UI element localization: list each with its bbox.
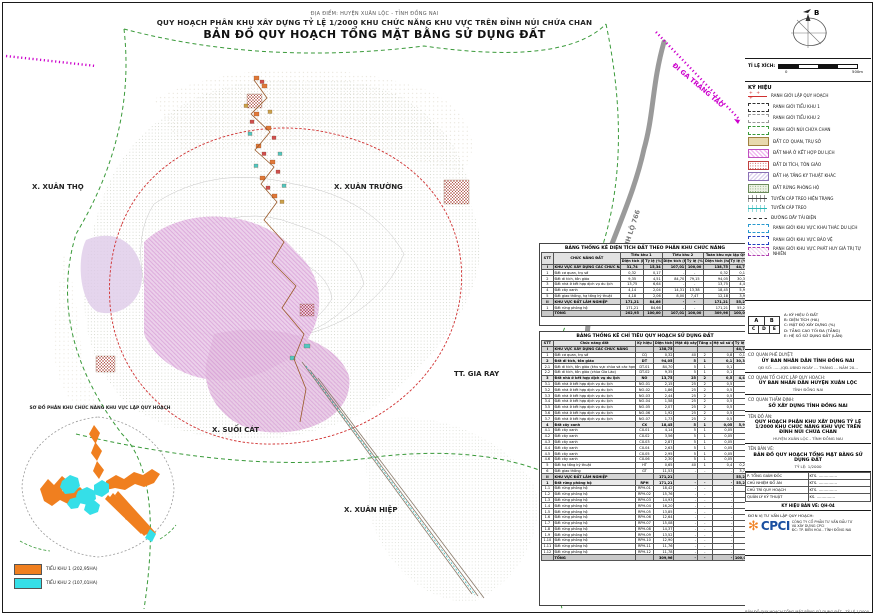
approval-agency: ỦY BAN NHÂN DÂN TỈNH ĐỒNG NAI <box>748 359 868 364</box>
legend-swatch <box>748 215 767 222</box>
signature-row: CHỦ TRÌ QUY HOẠCH KTS. …………… <box>746 487 871 494</box>
legend-item: ĐẤT RỪNG PHÒNG HỘ <box>748 184 868 193</box>
drawing-label: TÊN BẢN VẼ: <box>748 446 868 451</box>
legend-label: ĐẤT NHÀ Ở KẾT HỢP DU LỊCH <box>773 151 835 156</box>
parcel-key-list: A: KÝ HIỆU Ô ĐẤT B: DIỆN TÍCH (HA) C: MẬ… <box>784 312 843 338</box>
plan-title: QUY HOẠCH PHÂN KHU XÂY DỰNG TỶ LỆ 1/2000… <box>4 18 745 27</box>
table1-title: BẢNG THỐNG KÊ DIỆN TÍCH ĐẤT THEO PHÂN KH… <box>541 245 749 252</box>
inset-legend-swatch <box>14 564 42 575</box>
approval-label: CƠ QUAN PHÊ DUYỆT: <box>748 352 868 357</box>
table1-body: I KHU VỰC XÂY DỰNG CÁC CHỨC NĂNG 31,74 1… <box>542 264 749 316</box>
legend-item: TUYẾN CÁP TREO <box>748 205 868 212</box>
legend-swatch <box>748 93 767 100</box>
land-use-indicator-table: BẢNG THỐNG KÊ CHỈ TIÊU QUY HOẠCH SỬ DỤNG… <box>539 331 751 606</box>
legend-swatch <box>748 172 769 181</box>
cpci-flower-icon: ✻ <box>748 520 759 533</box>
inset-zone1 <box>40 425 160 536</box>
legend-label: RANH GIỚI TIỂU KHU 1 <box>773 105 820 110</box>
footer-note: BẢN ĐỒ QUY HOẠCH TỔNG MẶT BẰNG SỬ DỤNG Đ… <box>745 610 869 614</box>
table2: STT Chức năng đất Ký hiệu Diện tích (ha)… <box>541 340 749 561</box>
legend-list: RANH GIỚI LẬP QUY HOẠCH RANH GIỚI TIỂU K… <box>748 93 868 256</box>
legend-item: TUYẾN CÁP TREO HIỆN TRẠNG <box>748 195 868 202</box>
consultant-label: ĐƠN VỊ TƯ VẤN LẬP QUY HOẠCH: <box>748 513 868 518</box>
legend-item: ĐẤT NHÀ Ở KẾT HỢP DU LỊCH <box>748 149 868 158</box>
sheet-title: BẢN ĐỒ QUY HOẠCH TỔNG MẶT BẰNG SỬ DỤNG Đ… <box>4 28 745 41</box>
legend-label: TUYẾN CÁP TREO <box>771 206 807 211</box>
scale-start: 0 <box>785 69 787 74</box>
legend-label: TUYẾN CÁP TREO HIỆN TRẠNG <box>771 197 833 202</box>
consultant-info: CÔNG TY CỔ PHẦN TƯ VẤN ĐẦU TƯ VÀ XÂY DỰN… <box>792 520 853 533</box>
legend-label: ĐẤT RỪNG PHÒNG HỘ <box>773 186 819 191</box>
label-gia-ray: TT. GIA RAY <box>454 370 500 378</box>
signature-row: P. TỔNG GIÁM ĐỐC KTS. …………… <box>746 472 871 479</box>
legend-label: RANH GIỚI NÚI CHỨA CHAN <box>773 128 830 133</box>
legend-item: RANH GIỚI KHU VỰC BẢO VỆ <box>748 236 868 245</box>
table2-body: I KHU VỰC XÂY DỰNG CÁC CHỨC NĂNG 138,75 … <box>542 346 749 560</box>
legend-item: ĐẤT DI TÍCH, TÔN GIÁO <box>748 161 868 170</box>
scale-end: 500m <box>852 69 863 74</box>
legend-swatch <box>748 137 769 146</box>
label-xuan-truong: X. XUÂN TRƯỜNG <box>334 182 403 191</box>
legend-swatch <box>748 114 769 123</box>
table-row: TỔNG 202,95 100,00 107,01 100,00 309,96 … <box>542 310 749 316</box>
label-xuan-hiep: X. XUÂN HIỆP <box>344 505 397 514</box>
legend-item: RANH GIỚI NÚI CHỨA CHAN <box>748 126 868 135</box>
organizer-label: CƠ QUAN TỔ CHỨC LẬP QUY HOẠCH: <box>748 375 868 380</box>
title-block-panel: B TỈ LỆ XÍCH: 0 500m KÝ HIỆU RANH GIỚI L… <box>745 4 871 609</box>
legend-swatch <box>748 103 769 112</box>
scale-bar <box>778 64 858 69</box>
legend-swatch <box>748 184 769 193</box>
label-xuan-tho: X. XUÂN THỌ <box>32 182 84 191</box>
organizer-section: CƠ QUAN TỔ CHỨC LẬP QUY HOẠCH: ỦY BAN NH… <box>745 373 871 396</box>
inset-legend-item: TIỂU KHU 2 (107,01HA) <box>14 578 97 589</box>
approval-section: CƠ QUAN PHÊ DUYỆT: ỦY BAN NHÂN DÂN TỈNH … <box>745 350 871 373</box>
table2-title: BẢNG THỐNG KÊ CHỈ TIÊU QUY HOẠCH SỬ DỤNG… <box>541 333 749 340</box>
drawing-name: BẢN ĐỒ QUY HOẠCH TỔNG MẶT BẰNG SỬ DỤNG Đ… <box>748 453 868 463</box>
appraisal-section: CƠ QUAN THẨM ĐỊNH: SỞ XÂY DỰNG TỈNH ĐỒNG… <box>745 395 871 412</box>
organizer-agency: ỦY BAN NHÂN DÂN HUYỆN XUÂN LỘC <box>748 381 868 386</box>
inset-legend: TIỂU KHU 1 (202,95HA) TIỂU KHU 2 (107,01… <box>14 564 97 592</box>
railway-arrowhead <box>734 119 740 124</box>
compass-rose: B <box>773 6 843 51</box>
appraisal-agency: SỞ XÂY DỰNG TỈNH ĐỒNG NAI <box>748 404 868 409</box>
location-line: ĐỊA ĐIỂM: HUYỆN XUÂN LỘC - TỈNH ĐỒNG NAI <box>4 11 745 17</box>
approval-decision: QĐ SỐ: ....../QĐ-UBND NGÀY ... THÁNG ...… <box>748 365 868 370</box>
parcel-key-entry: E: HỆ SỐ SỬ DỤNG ĐẤT (LẦN) <box>784 333 843 338</box>
legend-item: RANH GIỚI KHU VỰC PHÁT HUY GIÁ TRỊ TỰ NH… <box>748 247 868 256</box>
legend-item: RANH GIỚI TIỂU KHU 2 <box>748 114 868 123</box>
signature-table: P. TỔNG GIÁM ĐỐC KTS. …………… CHỦ NHIỆM ĐỒ… <box>745 472 871 502</box>
drawing-code: KÝ HIỆU BẢN VẼ: QH-04 <box>745 502 871 510</box>
legend-swatch <box>748 205 767 212</box>
parcel-key-diagram: A B C D E <box>748 316 780 334</box>
consultant-section: ĐƠN VỊ TƯ VẤN LẬP QUY HOẠCH: ✻ CPCI CÔNG… <box>745 511 871 556</box>
legend-item: ĐẤT HẠ TẦNG KỸ THUẬT KHÁC <box>748 172 868 181</box>
t1-h-func: CHỨC NĂNG ĐẤT <box>553 253 620 265</box>
project-name: QUY HOẠCH PHÂN KHU XÂY DỰNG TỶ LỆ 1/2000… <box>748 420 868 435</box>
legend-section: KÝ HIỆU RANH GIỚI LẬP QUY HOẠCH RANH GIỚ… <box>745 82 871 301</box>
north-label: B <box>814 9 819 17</box>
legend-item: RANH GIỚI KHU VỰC KHAI THÁC DU LỊCH <box>748 224 868 233</box>
signature-section: P. TỔNG GIÁM ĐỐC KTS. …………… CHỦ NHIỆM ĐỒ… <box>745 472 871 511</box>
legend-label: RANH GIỚI TIỂU KHU 2 <box>773 116 820 121</box>
legend-swatch <box>748 149 769 158</box>
inset-legend-item: TIỂU KHU 1 (202,95HA) <box>14 564 97 575</box>
map-area: ĐỊA ĐIỂM: HUYỆN XUÂN LỘC - TỈNH ĐỒNG NAI… <box>4 4 746 609</box>
legend-item: ĐƯỜNG DÂY TẢI ĐIỆN <box>748 215 868 222</box>
legend-label: ĐẤT HẠ TẦNG KỸ THUẬT KHÁC <box>773 174 836 179</box>
drawing-name-section: TÊN BẢN VẼ: BẢN ĐỒ QUY HOẠCH TỔNG MẶT BẰ… <box>745 444 871 472</box>
organizer-province: TỈNH ĐỒNG NAI <box>748 387 868 392</box>
signature-row: QUẢN LÝ KỸ THUẬT KS. …………… <box>746 494 871 501</box>
legend-label: RANH GIỚI KHU VỰC PHÁT HUY GIÁ TRỊ TỰ NH… <box>773 247 868 256</box>
legend-swatch <box>748 161 769 170</box>
drawing-scale: TỶ LỆ: 1/2000 <box>748 464 868 469</box>
legend-swatch <box>748 224 769 233</box>
legend-item: ĐẤT CƠ QUAN, TRỤ SỞ <box>748 137 868 146</box>
label-suoi-cat: X. SUỐI CÁT <box>212 424 259 434</box>
legend-swatch <box>748 236 769 245</box>
parcel-key-section: A B C D E A: KÝ HIỆU Ô ĐẤT B: DIỆN TÍCH … <box>745 301 871 350</box>
inset-legend-label: TIỂU KHU 2 (107,01HA) <box>46 581 97 586</box>
inset-canvas <box>10 411 188 563</box>
legend-item: RANH GIỚI LẬP QUY HOẠCH <box>748 93 868 100</box>
table-row: TỔNG 309,96 - - - 100,00 <box>542 555 749 561</box>
cpci-logo-text: CPCI <box>761 520 790 532</box>
scalebar-label: TỈ LỆ XÍCH: <box>748 64 775 69</box>
inset-map: SƠ ĐỒ PHÂN KHU CHỨC NĂNG KHU VỰC LẬP QUY… <box>10 406 190 612</box>
inset-legend-label: TIỂU KHU 1 (202,95HA) <box>46 567 97 572</box>
appraisal-label: CƠ QUAN THẨM ĐỊNH: <box>748 397 868 402</box>
inset-legend-swatch <box>14 578 42 589</box>
signature-row: CHỦ NHIỆM ĐỒ ÁN KTS. …………… <box>746 479 871 486</box>
plan-sheet: ĐỊA ĐIỂM: HUYỆN XUÂN LỘC - TỈNH ĐỒNG NAI… <box>0 0 875 615</box>
legend-swatch <box>748 247 769 256</box>
compass-section: B <box>745 4 871 59</box>
label-rail: ĐI GA TRẢNG TÁO <box>671 60 727 110</box>
legend-label: RANH GIỚI LẬP QUY HOẠCH <box>771 94 828 99</box>
legend-label: ĐẤT CƠ QUAN, TRỤ SỞ <box>773 140 821 145</box>
legend-label: RANH GIỚI KHU VỰC KHAI THÁC DU LỊCH <box>773 226 858 231</box>
t1-h-stt: STT <box>542 253 554 265</box>
parcel-key-entry: C: MẬT ĐỘ XÂY DỰNG (%) <box>784 322 843 327</box>
land-area-table: BẢNG THỐNG KÊ DIỆN TÍCH ĐẤT THEO PHÂN KH… <box>539 243 751 326</box>
legend-swatch <box>748 126 769 135</box>
legend-label: RANH GIỚI KHU VỰC BẢO VỆ <box>773 238 833 243</box>
legend-label: ĐẤT DI TÍCH, TÔN GIÁO <box>773 163 821 168</box>
table1: STT CHỨC NĂNG ĐẤT Tiểu khu 1 Tiểu khu 2 … <box>541 252 749 317</box>
map-titles: ĐỊA ĐIỂM: HUYỆN XUÂN LỘC - TỈNH ĐỒNG NAI… <box>4 11 745 41</box>
legend-label: ĐƯỜNG DÂY TẢI ĐIỆN <box>771 216 816 221</box>
legend-item: RANH GIỚI TIỂU KHU 1 <box>748 103 868 112</box>
project-label: TÊN ĐỒ ÁN: <box>748 414 868 419</box>
project-location: HUYỆN XUÂN LỘC - TỈNH ĐỒNG NAI <box>748 436 868 441</box>
scalebar-section: TỈ LỆ XÍCH: 0 500m <box>745 59 871 82</box>
legend-swatch <box>748 195 767 202</box>
project-name-section: TÊN ĐỒ ÁN: QUY HOẠCH PHÂN KHU XÂY DỰNG T… <box>745 412 871 445</box>
